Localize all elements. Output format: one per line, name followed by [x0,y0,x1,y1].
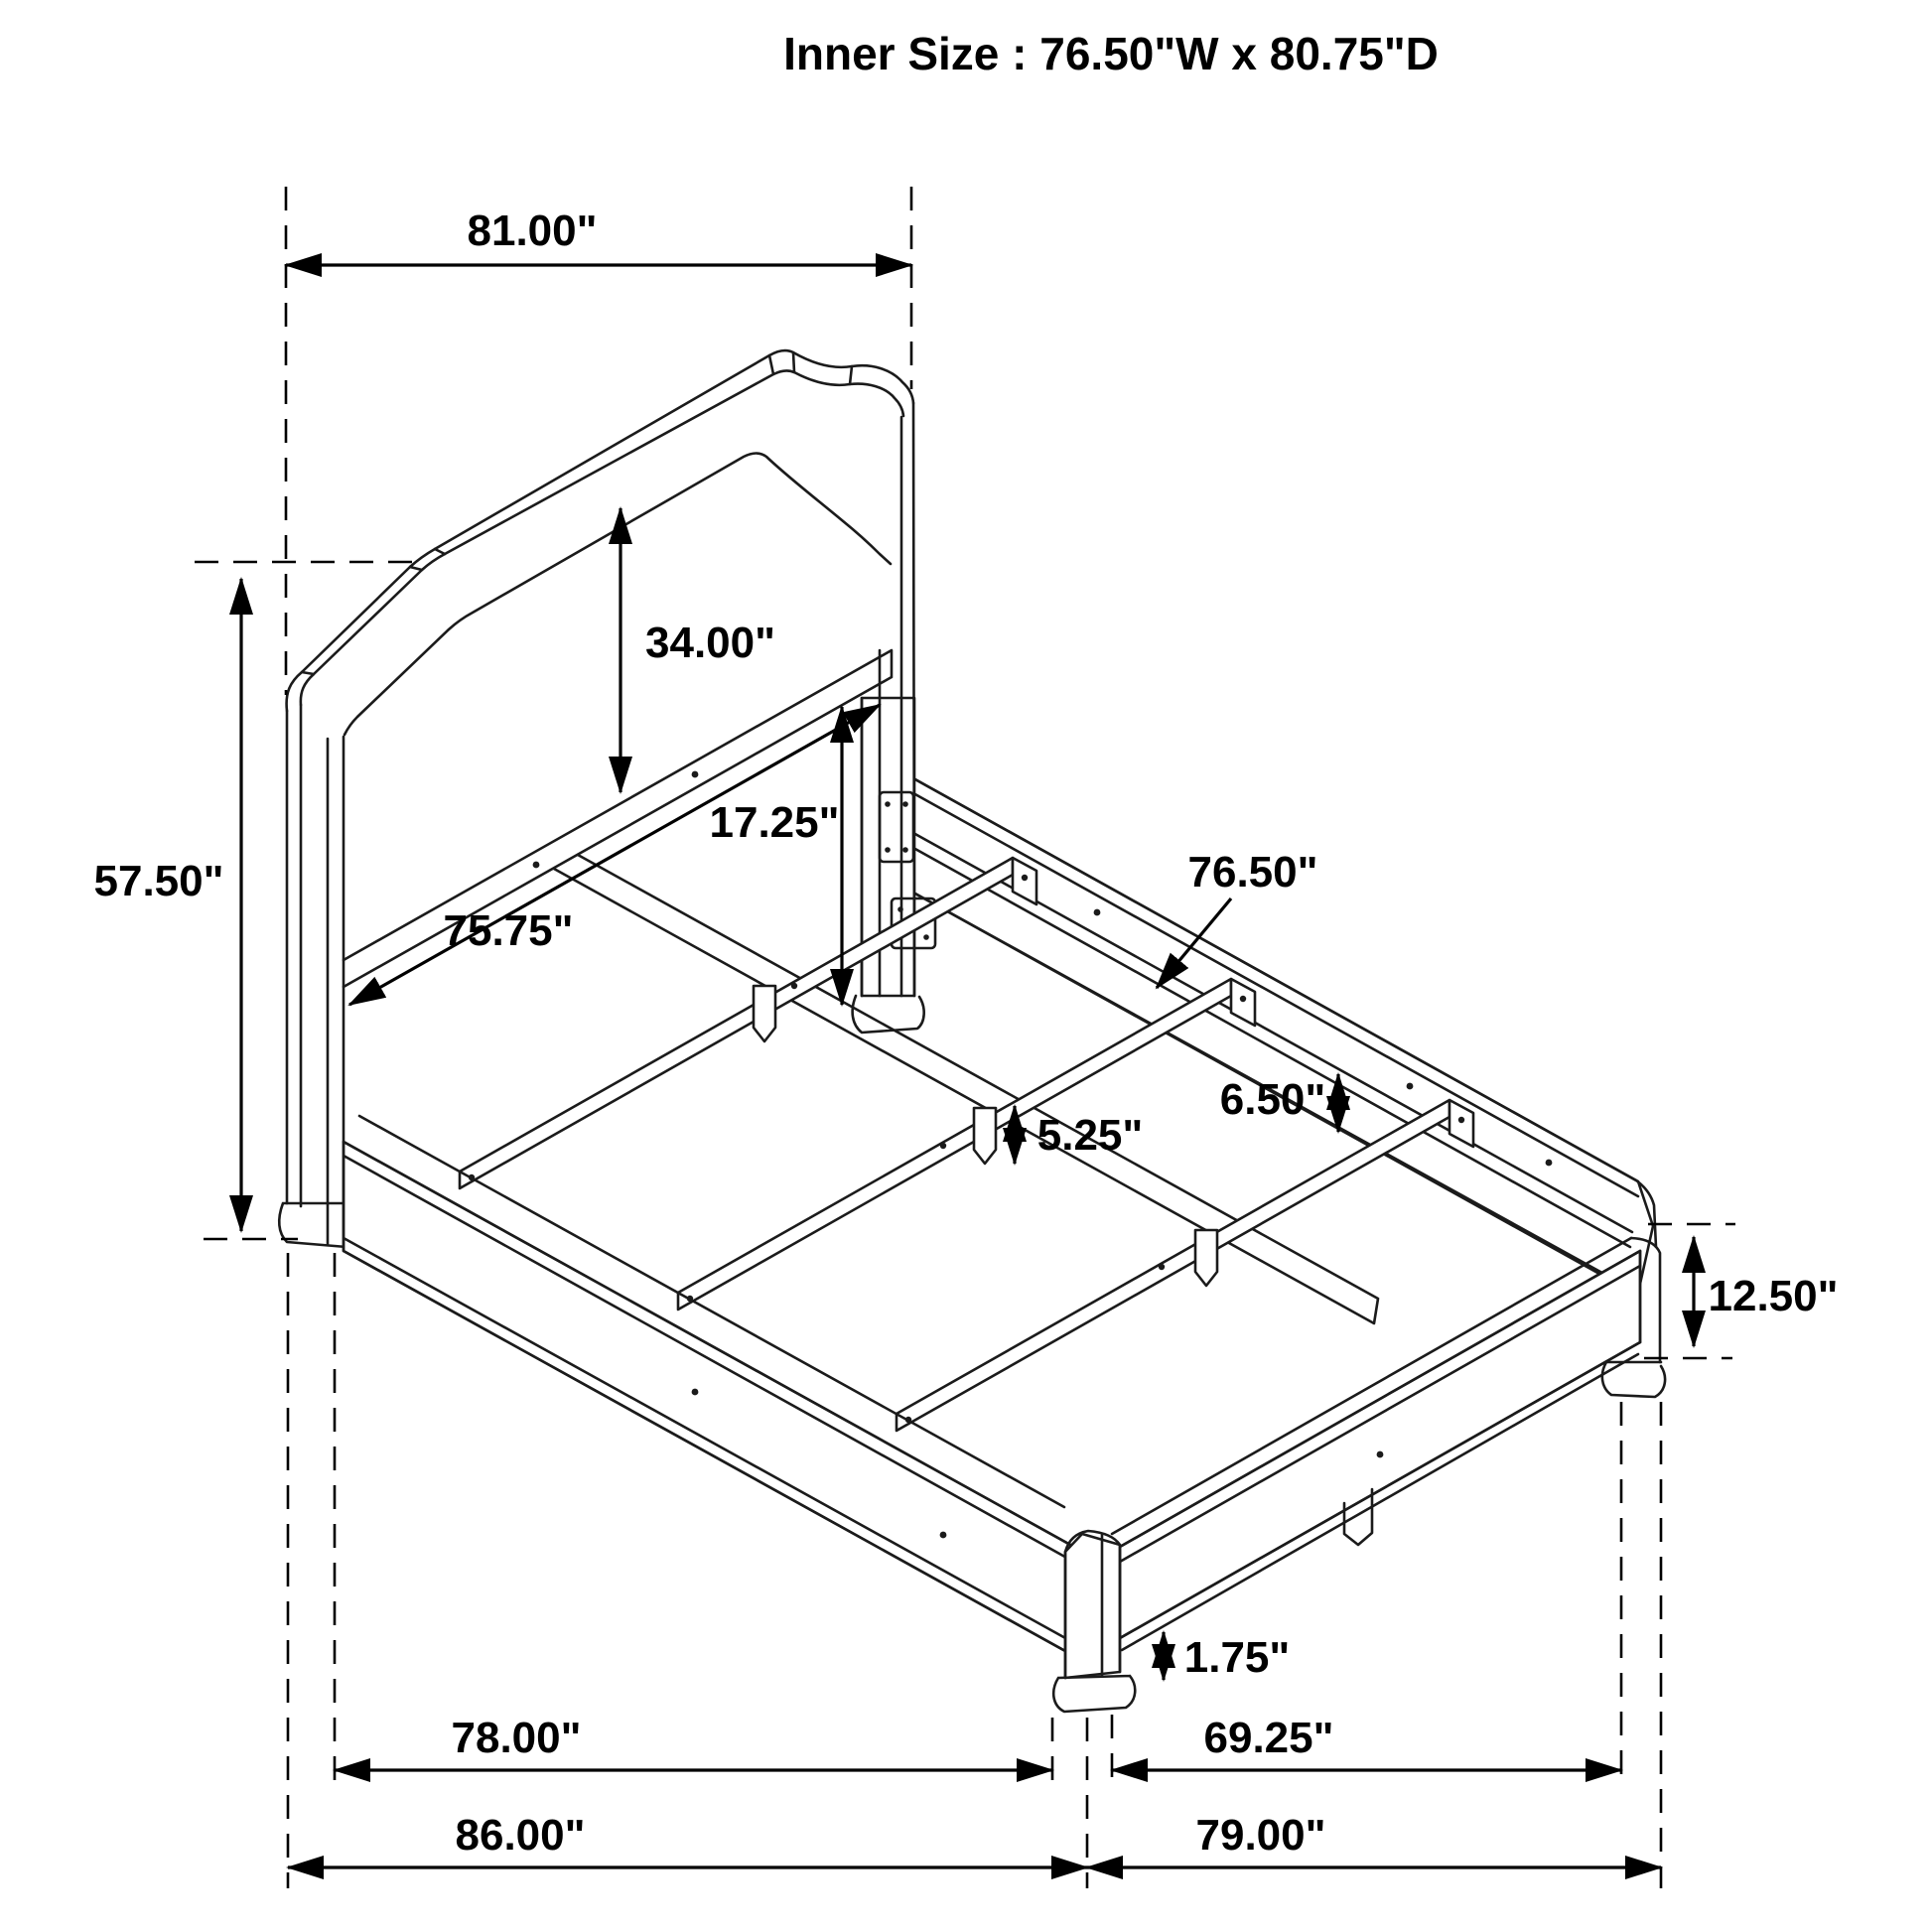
dim-footboard-width: 79.00" [1087,1811,1661,1867]
dim-label-overall-length: 86.00" [456,1811,586,1860]
dim-headboard-width: 81.00" [286,187,911,695]
dim-label-slat-length: 76.50" [1188,848,1318,897]
dim-label-slat-leg-height: 5.25" [1037,1111,1144,1160]
bed-frame-drawing [279,350,1665,1712]
dim-label-rail-length: 78.00" [452,1714,582,1762]
dimension-annotations: 81.00" 57.50" 34.00" 17.25" 75.75" 76.50… [94,187,1839,1888]
bed-dimension-diagram: 81.00" 57.50" 34.00" 17.25" 75.75" 76.50… [0,0,1932,1932]
dim-panel-to-slat: 17.25" [710,707,842,1005]
dim-label-rail-height: 6.50" [1220,1075,1326,1124]
dim-headboard-height: 57.50" [94,562,427,1239]
dim-label-foot-height: 1.75" [1184,1633,1291,1682]
dim-rail-height: 6.50" [1220,1074,1338,1132]
dim-label-headboard-height: 57.50" [94,857,224,905]
dim-label-headboard-inner-width: 75.75" [444,906,574,955]
diagram-canvas: 81.00" 57.50" 34.00" 17.25" 75.75" 76.50… [0,0,1932,1932]
dim-footboard-inner-width: 69.25" [1112,1714,1621,1770]
dim-label-panel-height: 34.00" [645,619,775,667]
dim-label-headboard-width: 81.00" [468,207,598,255]
dim-panel-height: 34.00" [621,508,775,792]
dim-footboard-height: 12.50" [1644,1224,1838,1358]
dim-foot-height: 1.75" [1164,1632,1290,1682]
page-title: Inner Size : 76.50"W x 80.75"D [783,28,1439,79]
dim-label-panel-to-slat: 17.25" [710,798,840,847]
dim-label-footboard-inner-width: 69.25" [1204,1714,1334,1762]
footboard [1053,1238,1665,1712]
dim-headboard-inner-width: 75.75" [349,705,880,1005]
dim-label-footboard-width: 79.00" [1196,1811,1326,1860]
dim-overall-length: 86.00" [288,1811,1087,1867]
dim-label-footboard-height: 12.50" [1709,1272,1839,1320]
dim-rail-length: 78.00" [335,1714,1052,1770]
